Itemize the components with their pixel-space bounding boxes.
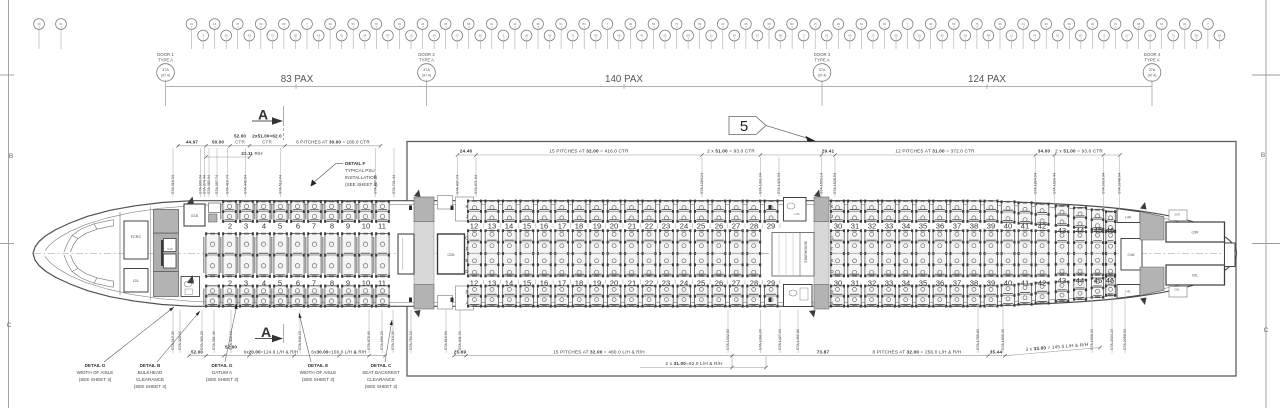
svg-text:G5R: G5R [1192,231,1200,235]
svg-text:42: 42 [1038,222,1046,231]
svg-text:STA 1929.44: STA 1929.44 [1053,173,1057,194]
svg-text:44.97: 44.97 [186,140,198,145]
svg-text:FCRC: FCRC [131,235,142,239]
svg-text:27: 27 [732,278,740,287]
svg-text:8 PITCHES AT 32.00 = 256.0 L/H: 8 PITCHES AT 32.00 = 256.0 L/H & R/H [873,349,962,354]
svg-text:STA 841.00: STA 841.00 [458,331,462,350]
svg-text:33: 33 [885,222,893,231]
svg-text:C: C [1264,327,1269,334]
svg-text:9: 9 [346,222,350,231]
svg-text:10: 10 [362,222,370,231]
svg-text:45: 45 [1094,276,1102,285]
svg-text:34: 34 [902,278,910,287]
svg-text:STA 2048.94: STA 2048.94 [1118,173,1122,194]
svg-text:31: 31 [851,222,859,231]
svg-text:20: 20 [610,278,618,287]
svg-text:22: 22 [645,222,653,231]
svg-text:16: 16 [540,278,548,287]
svg-text:3: 3 [244,222,248,231]
svg-text:INSTALLATION: INSTALLATION [345,175,377,180]
svg-text:4: 4 [262,222,266,231]
svg-text:(97.4): (97.4) [818,74,827,78]
svg-text:STA 1503.14: STA 1503.14 [820,173,824,194]
svg-text:10: 10 [362,279,370,288]
svg-text:G5L: G5L [1174,288,1180,292]
svg-text:38: 38 [970,278,978,287]
svg-text:B: B [1261,152,1265,159]
svg-text:73.87: 73.87 [817,349,830,354]
svg-text:STA 1391.04: STA 1391.04 [759,173,763,194]
svg-text:(SEE SHEET 3): (SEE SHEET 3) [206,377,239,382]
svg-text:STA 416.74: STA 416.74 [226,175,230,194]
svg-text:G5R: G5R [1174,213,1180,217]
svg-text:44: 44 [1076,276,1084,285]
svg-text:DOOR 1: DOOR 1 [157,52,174,57]
svg-text:L4L: L4L [1125,290,1131,294]
svg-text:(97.4): (97.4) [1148,74,1157,78]
svg-text:29: 29 [767,222,775,231]
svg-text:2 x 51.00 = 93.0 CTR: 2 x 51.00 = 93.0 CTR [707,148,755,153]
svg-text:13: 13 [488,222,496,231]
svg-text:41: 41 [1021,278,1029,287]
svg-text:STA 1284.24: STA 1284.24 [700,173,704,194]
svg-text:24: 24 [680,278,688,287]
svg-text:140 PAX: 140 PAX [605,74,643,85]
svg-text:6 PITCHES AT 30.00 = 180.0 CTR: 6 PITCHES AT 30.00 = 180.0 CTR [296,140,370,145]
svg-text:26: 26 [715,278,723,287]
svg-text:DETAIL B: DETAIL B [140,363,161,368]
svg-text:7: 7 [312,279,316,288]
svg-text:50.00: 50.00 [212,140,224,145]
svg-text:BULKHEAD: BULKHEAD [138,370,163,375]
svg-text:2 x 51.00 = 93.0 CTR: 2 x 51.00 = 93.0 CTR [1055,148,1103,153]
svg-text:(97.4): (97.4) [422,74,431,78]
svg-text:30: 30 [834,278,842,287]
svg-text:STA 391.40: STA 391.40 [212,331,216,350]
svg-text:37A: 37A [423,68,430,72]
svg-text:5: 5 [278,222,282,231]
svg-text:TYPE A: TYPE A [814,58,829,63]
svg-text:STA 1528.54: STA 1528.54 [833,173,837,194]
svg-text:C: C [7,322,12,329]
svg-text:41: 41 [1021,222,1029,231]
svg-text:39: 39 [987,222,995,231]
svg-text:WIDTH OF AISLE: WIDTH OF AISLE [300,370,337,375]
svg-text:27: 27 [732,222,740,231]
svg-text:24.46: 24.46 [460,148,473,153]
svg-text:18: 18 [575,222,583,231]
svg-text:STA 837.74: STA 837.74 [456,175,460,194]
svg-text:38: 38 [970,222,978,231]
svg-text:TYPICAL PSU: TYPICAL PSU [345,168,375,173]
svg-text:26: 26 [715,222,723,231]
svg-text:K: K [466,204,469,209]
svg-text:32: 32 [868,222,876,231]
svg-text:42: 42 [1038,278,1046,287]
svg-text:25: 25 [697,222,705,231]
svg-text:36: 36 [936,222,944,231]
svg-text:D: D [465,269,468,274]
svg-text:STA 699.20: STA 699.20 [380,331,384,350]
svg-text:STA 374.44: STA 374.44 [203,175,207,194]
svg-text:E: E [466,258,469,263]
svg-text:G2B: G2B [447,253,455,257]
svg-text:F: F [466,247,469,252]
svg-text:52.00: 52.00 [234,134,246,139]
svg-text:12: 12 [470,278,478,287]
svg-text:6x20.00=124.0 L/H & R/H: 6x20.00=124.0 L/H & R/H [244,349,299,354]
svg-text:(SEE SHEET 4): (SEE SHEET 4) [345,182,378,187]
svg-text:23.11 R/H: 23.11 R/H [241,151,262,156]
svg-text:TYPE A: TYPE A [419,58,434,63]
svg-text:23: 23 [662,222,670,231]
svg-text:19: 19 [593,278,601,287]
svg-text:8: 8 [330,279,334,288]
svg-text:E: E [831,258,834,263]
svg-text:12 PITCHES AT 31.00 = 372.0 CT: 12 PITCHES AT 31.00 = 372.0 CTR [895,148,975,153]
svg-text:(97.4): (97.4) [161,74,170,78]
svg-text:11: 11 [378,279,386,288]
svg-text:32: 32 [868,278,876,287]
svg-text:30: 30 [834,222,842,231]
svg-text:STA 329.00: STA 329.00 [178,331,182,350]
svg-text:A: A [466,301,469,306]
svg-text:STA 1894.54: STA 1894.54 [1034,173,1038,194]
svg-text:6: 6 [296,279,300,288]
svg-text:2: 2 [228,222,232,231]
svg-text:37A: 37A [819,68,826,72]
svg-text:CTR: CTR [235,139,245,144]
svg-text:DETAIL F: DETAIL F [345,161,365,166]
svg-text:15: 15 [523,222,531,231]
svg-text:5: 5 [740,118,748,135]
svg-text:6: 6 [296,222,300,231]
svg-text:STA 675.90: STA 675.90 [367,331,371,350]
svg-text:DETAIL G: DETAIL G [211,363,232,368]
svg-text:4: 4 [262,279,266,288]
svg-text:37: 37 [953,222,961,231]
svg-text:14: 14 [505,222,513,231]
svg-text:28: 28 [750,278,758,287]
svg-text:STA 382.94: STA 382.94 [207,175,211,194]
svg-text:9: 9 [346,279,350,288]
svg-text:124 PAX: 124 PAX [968,74,1006,85]
svg-text:G/L: G/L [133,279,139,283]
svg-text:83 PAX: 83 PAX [281,74,314,85]
svg-text:37: 37 [953,278,961,287]
svg-text:8: 8 [330,222,334,231]
svg-text:18: 18 [575,278,583,287]
svg-text:A: A [261,324,271,340]
svg-text:DATUM A: DATUM A [212,370,233,375]
svg-text:34.00: 34.00 [1038,148,1051,153]
svg-text:K: K [831,204,834,209]
svg-text:37A: 37A [162,68,169,72]
svg-text:11: 11 [378,222,386,231]
svg-text:34: 34 [902,222,910,231]
svg-text:STA 2019.34: STA 2019.34 [1102,173,1106,194]
svg-text:(SEE SHEET 3): (SEE SHEET 3) [365,384,398,389]
svg-text:22: 22 [645,278,653,287]
svg-text:L4R: L4R [1125,216,1132,220]
svg-text:31: 31 [851,278,859,287]
svg-text:46: 46 [1106,276,1114,285]
svg-text:36: 36 [936,278,944,287]
svg-text:17: 17 [558,278,566,287]
svg-text:CLEARANCE: CLEARANCE [367,377,395,382]
svg-text:STA 316.34: STA 316.34 [171,175,175,194]
svg-text:TYPE A: TYPE A [158,58,173,63]
svg-text:STA 316.30: STA 316.30 [171,331,175,350]
svg-text:33: 33 [885,278,893,287]
svg-text:21: 21 [628,278,636,287]
svg-text:39: 39 [987,278,995,287]
svg-text:G1B: G1B [191,214,199,218]
svg-text:43: 43 [1058,226,1066,235]
svg-text:STA 1425.94: STA 1425.94 [777,173,781,194]
svg-text:35: 35 [919,222,927,231]
svg-text:DOOR 4: DOOR 4 [1144,52,1161,57]
svg-text:40: 40 [1004,278,1012,287]
svg-text:STA 1332.80: STA 1332.80 [726,329,730,350]
svg-text:STA 397.74: STA 397.74 [215,175,219,194]
svg-text:DETAIL E: DETAIL E [308,363,329,368]
svg-text:7: 7 [312,222,316,231]
svg-text:DOOR 3: DOOR 3 [814,52,831,57]
svg-text:20: 20 [610,222,618,231]
svg-text:23: 23 [662,278,670,287]
svg-text:G1A: G1A [167,247,173,251]
svg-text:J: J [466,214,468,219]
svg-text:2 x 31.00=62.0 L/H & R/H: 2 x 31.00=62.0 L/H & R/H [665,361,722,366]
svg-text:G: G [830,236,834,241]
svg-text:STA 721.44: STA 721.44 [392,175,396,194]
svg-text:CLEARANCE: CLEARANCE [136,377,164,382]
svg-text:G: G [465,236,469,241]
svg-text:15 PITCHES AT 32.00 = 480.0 L/: 15 PITCHES AT 32.00 = 480.0 L/H & R/H [553,349,645,354]
svg-text:(SEE SHEET 3): (SEE SHEET 3) [134,384,167,389]
svg-text:25: 25 [697,278,705,287]
svg-text:B: B [466,290,469,295]
svg-text:2: 2 [228,279,232,288]
svg-text:35: 35 [919,278,927,287]
svg-text:STA 1391.00: STA 1391.00 [759,329,763,350]
svg-text:TYPE A: TYPE A [1144,58,1159,63]
svg-text:STA 752.10: STA 752.10 [409,331,413,350]
svg-text:J: J [831,214,833,219]
svg-text:37A: 37A [1149,68,1156,72]
svg-text:D: D [830,269,833,274]
svg-text:G5L: G5L [1192,274,1199,278]
svg-text:SEAT BACKREST: SEAT BACKREST [362,370,400,375]
svg-text:STA 549.00: STA 549.00 [298,331,302,350]
svg-text:15: 15 [523,278,531,287]
svg-text:13: 13 [488,278,496,287]
svg-text:L3A: L3A [794,212,799,216]
svg-text:(SEE SHEET 3): (SEE SHEET 3) [302,377,335,382]
svg-text:WIDTH OF AISLE: WIDTH OF AISLE [77,370,114,375]
svg-text:STA 513.04: STA 513.04 [279,175,283,194]
svg-text:STA 449.54: STA 449.54 [244,175,248,194]
svg-text:44: 44 [1076,226,1084,235]
svg-text:STA 719.30: STA 719.30 [391,331,395,350]
svg-text:STA 2058.50: STA 2058.50 [1123,329,1127,350]
svg-text:DETAIL D: DETAIL D [85,363,106,368]
svg-text:21: 21 [628,222,636,231]
svg-text:A: A [831,301,834,306]
svg-text:A: A [258,107,268,123]
svg-text:B: B [831,290,834,295]
svg-text:STA 2034.20: STA 2034.20 [1110,329,1114,350]
svg-text:15 PITCHES AT 32.00 = 416.0 CT: 15 PITCHES AT 32.00 = 416.0 CTR [549,148,629,153]
svg-text:STA 1789.80: STA 1789.80 [976,329,980,350]
svg-text:14: 14 [505,278,513,287]
svg-text:46: 46 [1106,226,1114,235]
svg-text:45: 45 [1094,226,1102,235]
svg-text:STA 1835.30: STA 1835.30 [1001,329,1005,350]
svg-text:43: 43 [1058,276,1066,285]
svg-text:CTR: CTR [262,139,272,144]
svg-text:3: 3 [244,279,248,288]
svg-text:F: F [831,247,834,252]
svg-text:40: 40 [1004,222,1012,231]
svg-text:28: 28 [750,222,758,231]
svg-text:17: 17 [558,222,566,231]
svg-text:DOOR 2: DOOR 2 [418,52,435,57]
svg-text:12: 12 [470,222,478,231]
svg-text:STA 369.20: STA 369.20 [200,331,204,350]
svg-text:(SEE SHEET 3): (SEE SHEET 3) [79,377,112,382]
svg-text:STA 871.64: STA 871.64 [474,175,478,194]
svg-text:B: B [9,153,13,160]
svg-text:5: 5 [278,279,282,288]
svg-text:STA 1460.80: STA 1460.80 [796,329,800,350]
svg-text:24: 24 [680,222,688,231]
svg-text:G4M: G4M [1128,253,1135,257]
svg-text:6x30.00=100.0 L/H & R/H: 6x30.00=100.0 L/H & R/H [311,349,366,354]
svg-text:STA 1998.20: STA 1998.20 [1090,329,1094,350]
svg-text:STA 422.10: STA 422.10 [229,331,233,350]
svg-text:STAIRHOUSE: STAIRHOUSE [804,240,808,263]
svg-text:DETAIL C: DETAIL C [371,363,392,368]
svg-text:2x51.00=62.0: 2x51.00=62.0 [252,134,282,139]
svg-text:STA 816.60: STA 816.60 [444,331,448,350]
svg-text:29.41: 29.41 [822,148,835,153]
svg-text:29: 29 [767,278,775,287]
svg-text:STA 1427.00: STA 1427.00 [778,329,782,350]
svg-text:19: 19 [593,222,601,231]
svg-text:16: 16 [540,222,548,231]
svg-text:3 x 33.00 = 145.0 L/H & R/H: 3 x 33.00 = 145.0 L/H & R/H [1025,342,1088,352]
